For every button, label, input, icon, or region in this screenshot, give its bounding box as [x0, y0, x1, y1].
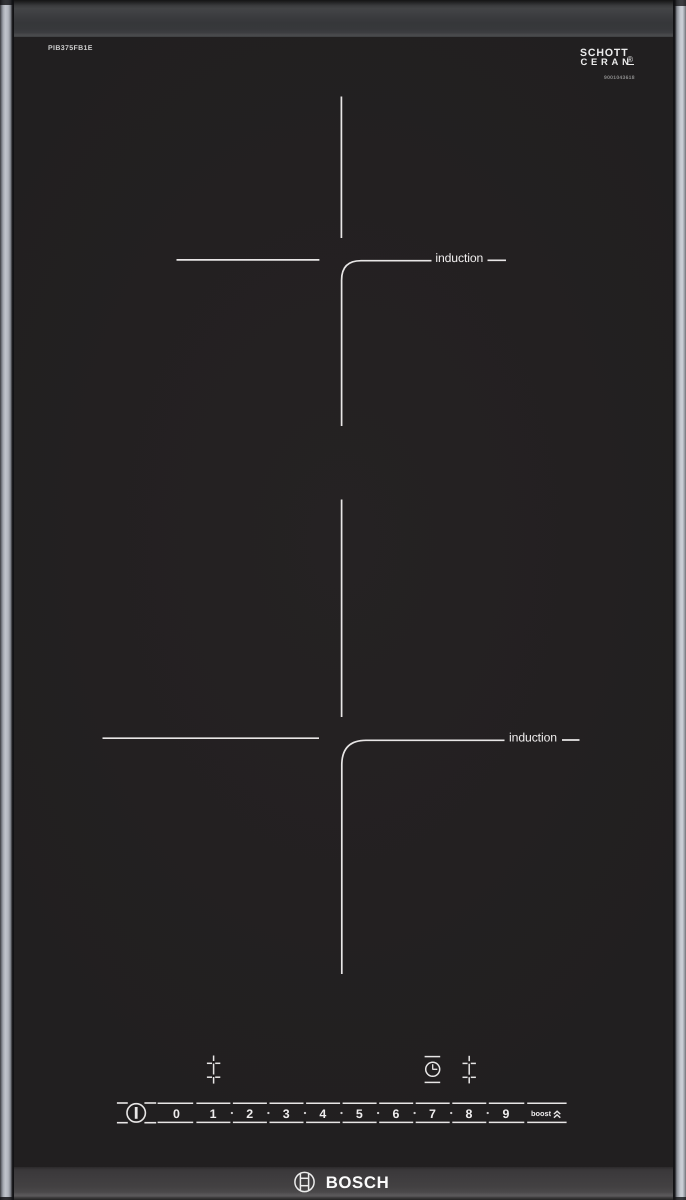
svg-text:2: 2 [246, 1107, 253, 1121]
svg-text:BOSCH: BOSCH [326, 1173, 390, 1192]
svg-text:5: 5 [356, 1107, 363, 1121]
svg-text:7: 7 [429, 1107, 436, 1121]
svg-text:9: 9 [503, 1107, 510, 1121]
svg-text:8: 8 [466, 1107, 473, 1121]
svg-text:1: 1 [210, 1107, 217, 1121]
svg-text:0: 0 [173, 1107, 180, 1121]
svg-text:induction: induction [509, 731, 557, 745]
svg-text:induction: induction [435, 251, 483, 265]
svg-text:4: 4 [319, 1107, 326, 1121]
svg-text:boost: boost [531, 1109, 552, 1118]
svg-text:6: 6 [392, 1107, 399, 1121]
svg-text:3: 3 [283, 1107, 290, 1121]
